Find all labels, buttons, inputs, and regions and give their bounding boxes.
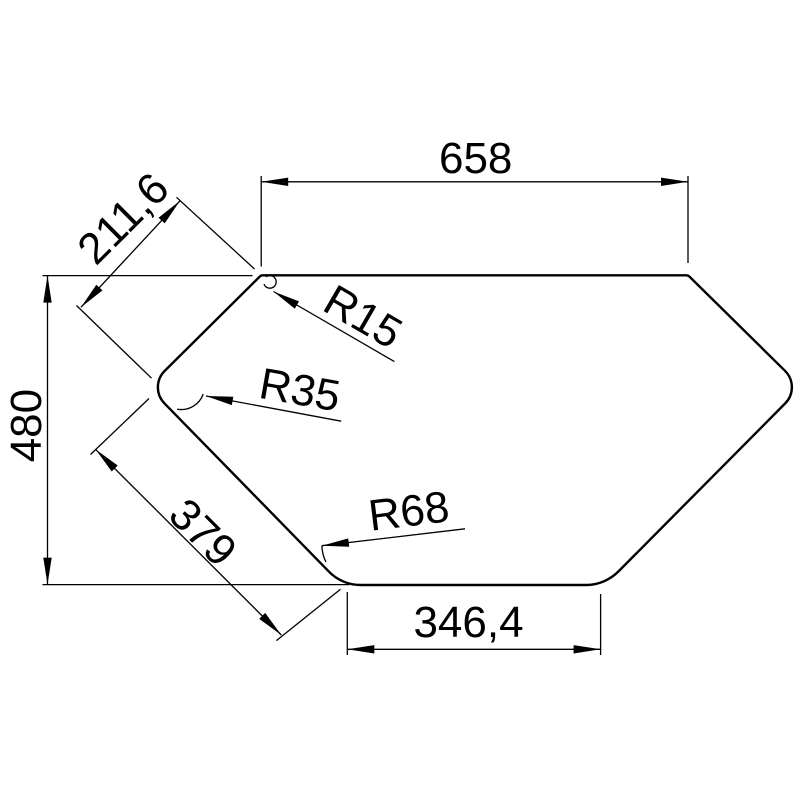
svg-text:R68: R68 [366,482,452,540]
svg-text:346,4: 346,4 [413,598,523,647]
svg-text:658: 658 [439,134,512,183]
svg-text:480: 480 [2,389,51,462]
